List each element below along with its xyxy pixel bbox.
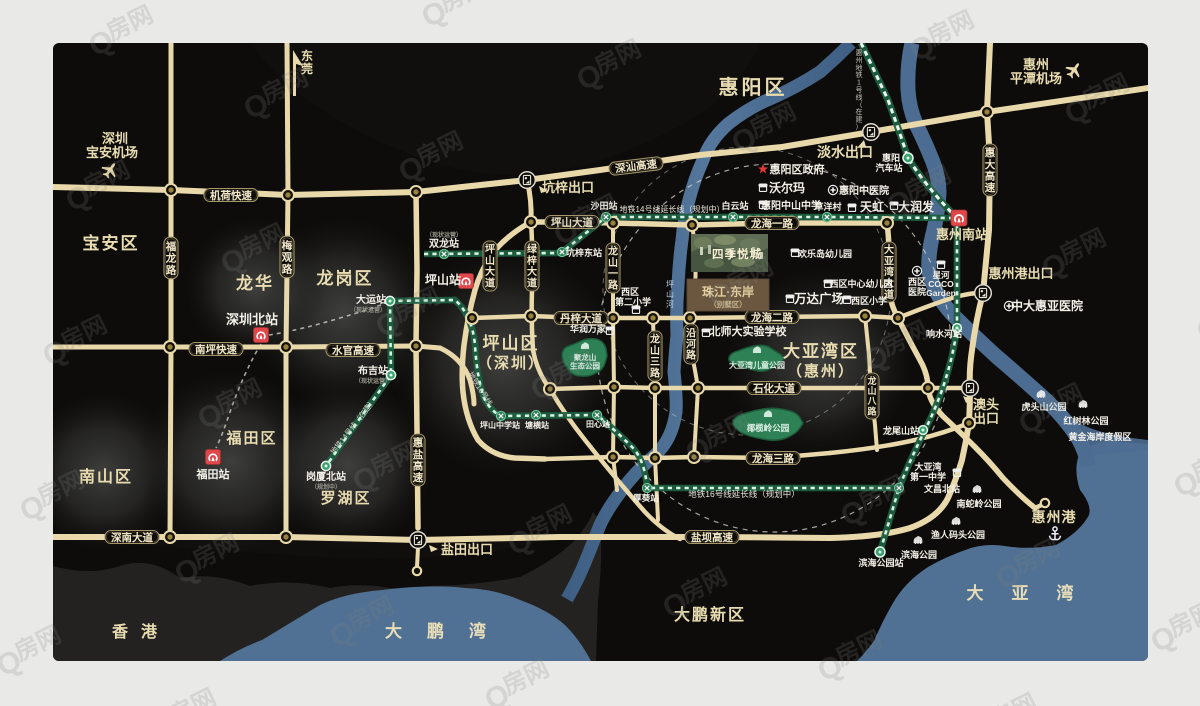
svg-text:滨海公园站: 滨海公园站 bbox=[858, 557, 903, 568]
svg-text:中大惠亚医院: 中大惠亚医院 bbox=[1011, 298, 1083, 313]
svg-text:塘横站: 塘横站 bbox=[525, 420, 549, 430]
svg-text:（规划中）: （规划中） bbox=[311, 483, 341, 491]
svg-text:地铁14号线延长线（规划中）: 地铁14号线延长线（规划中） bbox=[620, 204, 725, 214]
svg-text:宝安区: 宝安区 bbox=[83, 233, 140, 253]
svg-text:万达广场: 万达广场 bbox=[793, 291, 844, 306]
svg-text:大亚湾大道: 大亚湾大道 bbox=[884, 243, 894, 301]
svg-text:水官高速: 水官高速 bbox=[331, 344, 374, 357]
svg-text:盐坝高速: 盐坝高速 bbox=[691, 531, 733, 544]
svg-text:惠州: 惠州 bbox=[1023, 57, 1049, 72]
svg-text:大亚湾区（惠州）: 大亚湾区（惠州） bbox=[783, 341, 859, 380]
svg-text:深圳北站: 深圳北站 bbox=[226, 312, 278, 327]
svg-text:白云站: 白云站 bbox=[721, 200, 748, 211]
svg-text:龙岗区: 龙岗区 bbox=[316, 268, 374, 288]
svg-text:南坪快速: 南坪快速 bbox=[195, 343, 237, 356]
svg-text:福田站: 福田站 bbox=[196, 467, 230, 481]
svg-text:滨海公园: 滨海公园 bbox=[901, 549, 937, 560]
svg-text:坑梓东站: 坑梓东站 bbox=[566, 247, 602, 258]
svg-text:绿梓大道: 绿梓大道 bbox=[527, 243, 538, 290]
svg-text:大运站: 大运站 bbox=[356, 293, 386, 306]
svg-text:宝安机场: 宝安机场 bbox=[86, 145, 138, 160]
svg-text:厚葵站: 厚葵站 bbox=[633, 493, 659, 503]
svg-text:惠大高速: 惠大高速 bbox=[985, 146, 996, 194]
svg-text:龙山三路: 龙山三路 bbox=[649, 333, 661, 380]
svg-text:大亚湾儿童公园: 大亚湾儿童公园 bbox=[729, 360, 785, 370]
svg-text:华润万家: 华润万家 bbox=[570, 323, 607, 334]
svg-text:惠州地铁1号线（在建）: 惠州地铁1号线（在建） bbox=[856, 48, 863, 131]
svg-text:（现状运营）: （现状运营） bbox=[355, 377, 391, 385]
svg-text:红树林公园: 红树林公园 bbox=[1063, 415, 1108, 426]
svg-text:文昌北站: 文昌北站 bbox=[923, 483, 960, 494]
svg-text:盐田出口: 盐田出口 bbox=[441, 542, 493, 557]
svg-text:坪山中学站: 坪山中学站 bbox=[480, 420, 520, 430]
svg-text:沃尔玛: 沃尔玛 bbox=[769, 180, 805, 195]
svg-text:惠州港: 惠州港 bbox=[1032, 509, 1077, 525]
svg-text:石化大道: 石化大道 bbox=[752, 382, 795, 395]
svg-text:南蛇岭公园: 南蛇岭公园 bbox=[956, 498, 1001, 509]
svg-text:惠阳区: 惠阳区 bbox=[719, 76, 788, 99]
svg-text:黄金海岸度假区: 黄金海岸度假区 bbox=[1068, 431, 1131, 442]
svg-text:龙海三路: 龙海三路 bbox=[751, 452, 794, 465]
svg-text:坪山大道: 坪山大道 bbox=[485, 243, 495, 290]
svg-text:渔人码头公园: 渔人码头公园 bbox=[931, 529, 985, 540]
svg-text:深南大道: 深南大道 bbox=[111, 531, 153, 544]
svg-text:福田区: 福田区 bbox=[225, 429, 277, 447]
svg-text:坑梓出口: 坑梓出口 bbox=[542, 180, 594, 195]
svg-text:响水河站: 响水河站 bbox=[926, 328, 962, 339]
svg-text:惠阳区政府: 惠阳区政府 bbox=[770, 162, 825, 176]
svg-text:西区中心幼儿园: 西区中心幼儿园 bbox=[829, 278, 892, 289]
svg-text:丹梓大道: 丹梓大道 bbox=[560, 312, 602, 325]
svg-text:澳头出口: 澳头出口 bbox=[973, 397, 999, 426]
svg-text:地铁16号线延长线（规划中）: 地铁16号线延长线（规划中） bbox=[688, 489, 799, 499]
svg-text:天虹: 天虹 bbox=[860, 199, 884, 214]
svg-text:坪山河: 坪山河 bbox=[666, 280, 674, 309]
svg-text:大鹏湾: 大鹏湾 bbox=[385, 621, 511, 641]
svg-text:欢乐岛幼儿园: 欢乐岛幼儿园 bbox=[797, 248, 852, 259]
svg-text:西区小学: 西区小学 bbox=[851, 295, 887, 306]
svg-text:平潭机场: 平潭机场 bbox=[1010, 71, 1062, 86]
svg-text:大亚湾第一中学: 大亚湾第一中学 bbox=[910, 461, 946, 482]
svg-text:惠州南站: 惠州南站 bbox=[936, 227, 988, 242]
svg-text:北师大实验学校: 北师大实验学校 bbox=[710, 324, 788, 338]
svg-text:香港: 香港 bbox=[111, 622, 170, 641]
svg-text:龙山一路: 龙山一路 bbox=[607, 245, 619, 292]
svg-text:岗厦北站: 岗厦北站 bbox=[306, 470, 346, 483]
svg-text:龙海二路: 龙海二路 bbox=[750, 311, 793, 324]
svg-text:机荷快速: 机荷快速 bbox=[210, 189, 252, 202]
svg-text:龙山八路: 龙山八路 bbox=[866, 375, 877, 417]
svg-text:福龙路: 福龙路 bbox=[165, 240, 177, 276]
svg-text:大亚湾: 大亚湾 bbox=[967, 583, 1102, 603]
svg-text:龙海一路: 龙海一路 bbox=[750, 217, 793, 230]
svg-text:惠阳中山中学: 惠阳中山中学 bbox=[761, 199, 821, 212]
svg-text:南山区: 南山区 bbox=[79, 467, 133, 486]
svg-text:布吉站: 布吉站 bbox=[358, 364, 388, 377]
svg-text:沿河路: 沿河路 bbox=[686, 326, 697, 361]
svg-text:田心站: 田心站 bbox=[586, 419, 610, 429]
svg-text:西区医院: 西区医院 bbox=[908, 277, 926, 297]
svg-text:深圳: 深圳 bbox=[102, 131, 128, 146]
svg-text:龙尾山站: 龙尾山站 bbox=[882, 425, 919, 436]
svg-text:（现状运营）: （现状运营） bbox=[426, 231, 462, 239]
